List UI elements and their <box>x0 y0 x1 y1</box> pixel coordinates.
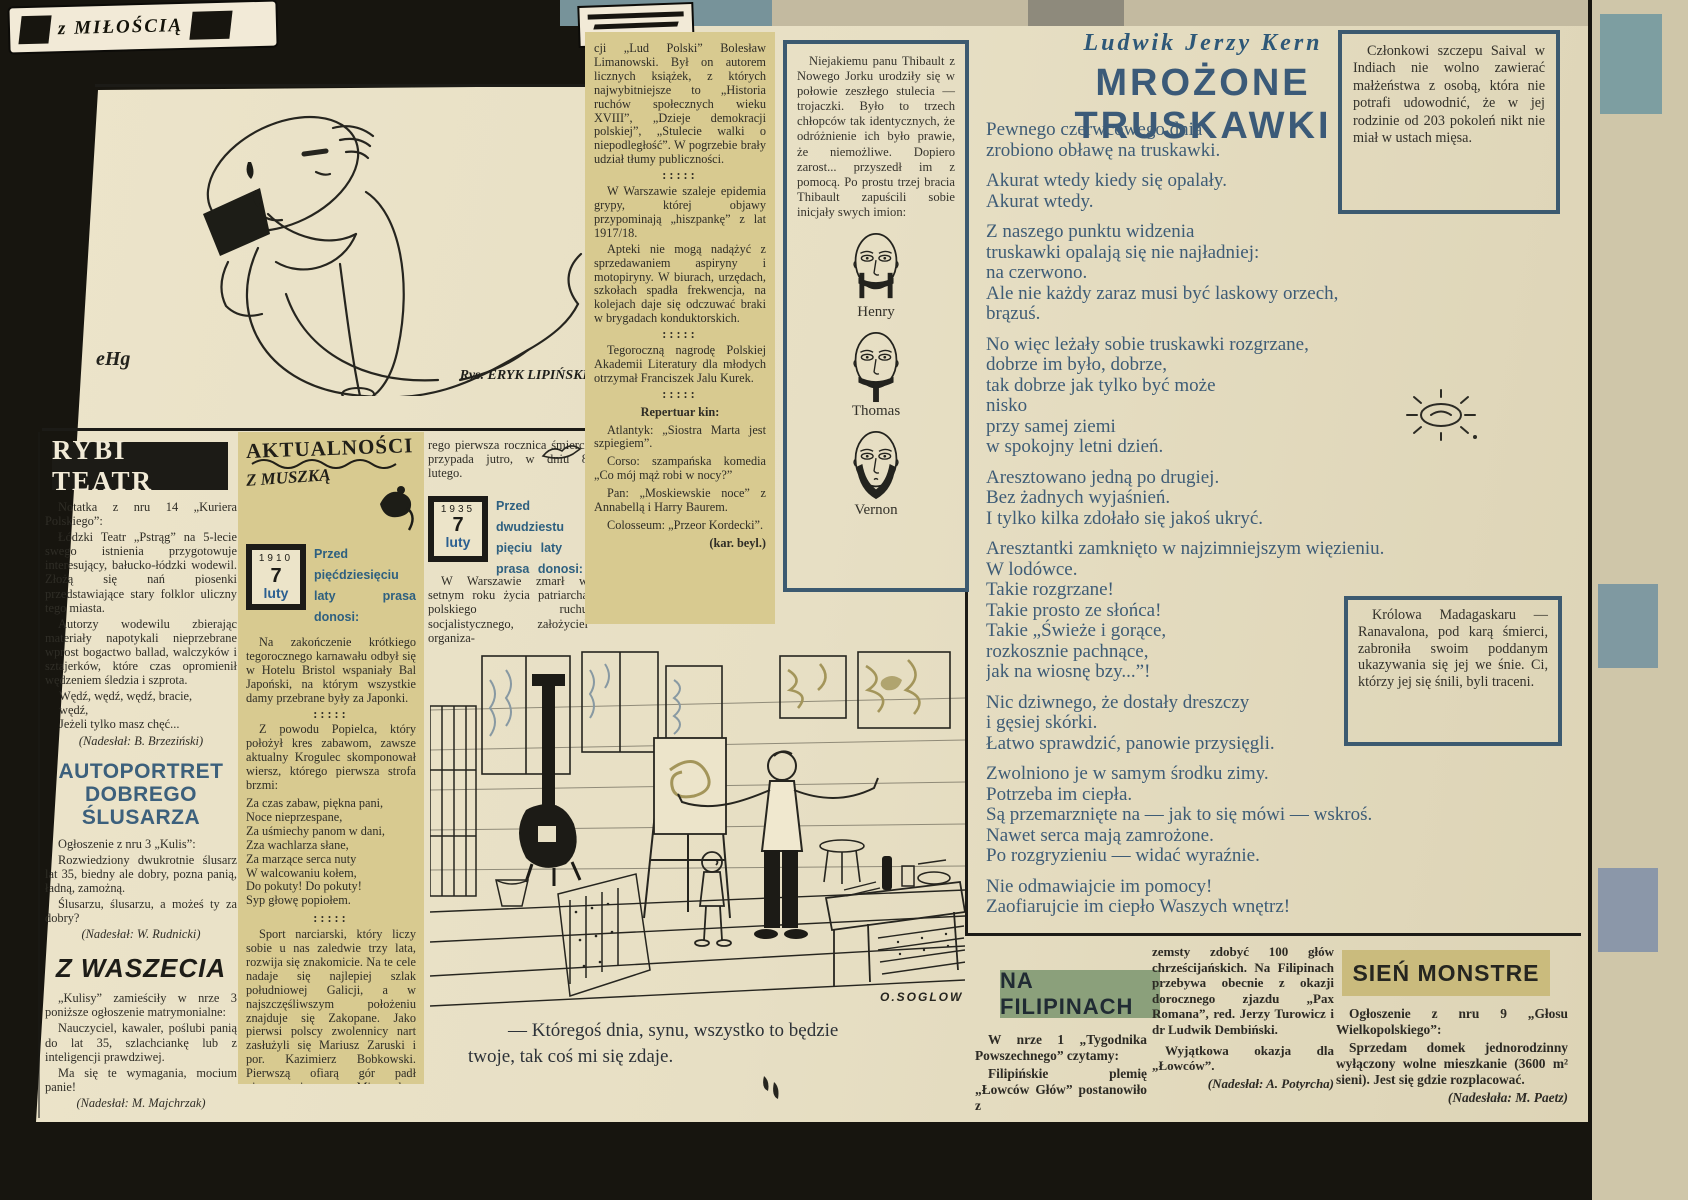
thibault-box: Niejakiemu panu Thibault z Nowego Jorku … <box>783 40 969 592</box>
paragraph: Z powodu Popielca, który położył kres za… <box>246 723 416 793</box>
filipiny-title: NA FILIPINACH <box>1000 968 1160 1020</box>
paragraph: Na zakończenie krótkiego tegorocznego ka… <box>246 636 416 706</box>
paragraph: Ślusarzu, ślusarzu, a możeś ty za dobry? <box>45 897 237 925</box>
calendar-month: luty <box>434 535 482 550</box>
edge-tab-top <box>1600 14 1662 114</box>
studio-cartoon-caption: — Któregoś dnia, synu, wszystko to będzi… <box>468 1018 978 1070</box>
poem-stanza: Nie odmawiajcie im pomocy! Zaofiarujcie … <box>986 877 1461 918</box>
rybi-teatr-title-banner: RYBI TEATR <box>52 442 228 490</box>
paragraph: cji „Lud Polski” Bolesław Limanowski. By… <box>594 42 766 167</box>
aktualnosci-logo-line1: AKTUALNOŚCI <box>246 439 416 459</box>
kino-item: Atlantyk: „Siostra Marta jest szpiegiem”… <box>594 424 766 452</box>
lead-line: Przed dwudziestu pięciu laty prasa donos… <box>496 496 590 580</box>
top-edge-smudge <box>1028 0 1124 26</box>
credit-line: (Nadesłał: A. Potyrcha) <box>1152 1076 1334 1092</box>
paragraph: zemsty zdobyć 100 głów chrześcijańskich.… <box>1152 944 1334 1038</box>
rybi-teatr-title: RYBI TEATR <box>52 435 228 497</box>
aktualnosci-logo-line2: Z MUSZKĄ <box>246 468 331 488</box>
credit-line: (Nadesłał: B. Brzeziński) <box>45 734 237 748</box>
calendar-year: 1910 <box>252 552 300 566</box>
face-vernon: Vernon <box>797 426 955 519</box>
edge-tab-middle <box>1598 584 1658 668</box>
verse: Wędź, wędź, wędź, bracie, wędź, Jeżeli t… <box>45 689 237 731</box>
saival-box: Członkowi szczepu Saival w Indiach nie w… <box>1338 30 1560 214</box>
aktualnosci-panel: AKTUALNOŚCI Z MUSZKĄ 1910 7 luty Przed p… <box>238 432 424 1084</box>
credit-line: (Nadesłała: M. Paetz) <box>1336 1090 1568 1106</box>
sien-title: SIEŃ MONSTRE <box>1352 960 1539 987</box>
henry-face-icon <box>844 228 908 304</box>
column-3-article: W Warszawie zmarł w setnym roku życia pa… <box>428 574 588 647</box>
face-name: Thomas <box>797 403 955 420</box>
sien-banner: SIEŃ MONSTRE <box>1342 950 1550 996</box>
paragraph: Wyjątkowa okazja dla „Łowców”. <box>1152 1043 1334 1074</box>
credit-line: (Nadesłał: W. Rudnicki) <box>45 927 237 941</box>
poem-body: Pewnego czerwcowego dnia zrobiono obławę… <box>986 120 1461 928</box>
cartoon-signature: eHg <box>96 348 166 371</box>
column-left: Notatka z nru 14 „Kuriera Polskiego”: Łó… <box>45 500 237 1120</box>
sien-text: Ogłoszenie z nru 9 „Głosu Wielkopolskieg… <box>1336 1006 1568 1118</box>
face-name: Henry <box>797 304 955 321</box>
kino-item: Colosseum: „Przeor Kordecki”. <box>594 519 766 533</box>
queen-box: Królowa Madagaskaru — Ranavalona, pod ka… <box>1344 596 1562 746</box>
kino-item: Corso: szampańska komedia „Co mój mąż ro… <box>594 455 766 483</box>
separator: ::::: <box>594 169 766 183</box>
paragraph: „Kulisy” zamieściły w nrze 3 poniższe og… <box>45 991 237 1019</box>
filipiny-column-b: zemsty zdobyć 100 głów chrześcijańskich.… <box>1152 944 1334 1114</box>
face-thomas: Thomas <box>797 327 955 420</box>
paragraph: Sprzedam domek jednorodzinny wyłączony w… <box>1336 1040 1568 1088</box>
paragraph: Notatka z nru 14 „Kuriera Polskiego”: <box>45 500 237 528</box>
repertuar-title: Repertuar kin: <box>594 406 766 420</box>
studio-cartoon <box>430 650 965 1018</box>
paragraph: W Warszawie zmarł w setnym roku życia pa… <box>428 574 588 645</box>
cartoon-caption: Rys. ERYK LIPIŃSKI <box>398 368 588 384</box>
left-fold-line <box>38 432 40 1118</box>
calendar-row-1935: 1935 7 luty Przed dwudziestu pięciu laty… <box>428 496 590 580</box>
poem-stanza: Zwolniono je w samym środku zimy. Potrze… <box>986 764 1461 867</box>
separator: ::::: <box>594 388 766 402</box>
prasa-donosi-strip: cji „Lud Polski” Bolesław Limanowski. By… <box>585 32 775 624</box>
masthead-ornament-icon <box>189 11 232 40</box>
thomas-face-icon <box>844 327 908 403</box>
queen-text: Królowa Madagaskaru — Ranavalona, pod ka… <box>1358 607 1548 691</box>
paragraph: Filipińskie plemię „Łowców Głów” postano… <box>975 1066 1147 1114</box>
filipiny-column-a: W nrze 1 „Tygodnika Powszechnego” czytam… <box>975 1032 1147 1116</box>
paragraph: W Warszawie szaleje epidemia grypy, któr… <box>594 185 766 241</box>
masthead-logo: z MIŁOŚCIĄ <box>9 2 276 53</box>
crying-man-cartoon <box>108 96 583 396</box>
calendar-day: 7 <box>252 566 300 586</box>
bird-doodle <box>540 440 585 466</box>
paragraph: Rozwiedziony dwukrotnie ślusarz lat 35, … <box>45 853 237 895</box>
magazine-page-scan: z MIŁOŚCIĄ eHg Rys. ER <box>0 0 1688 1200</box>
ink-doodle <box>758 1072 784 1106</box>
paragraph: W nrze 1 „Tygodnika Powszechnego” czytam… <box>975 1032 1147 1064</box>
paragraph: Sport narciarski, który liczy sobie u na… <box>246 928 416 1084</box>
edge-tab-bottom <box>1598 868 1658 952</box>
autoportret-title: AUTOPORTRET DOBREGO ŚLUSARZA <box>45 760 237 829</box>
poem-stanza: Aresztowano jedną po drugiej. Bez żadnyc… <box>986 468 1461 530</box>
poem-left-rule <box>965 592 968 936</box>
aktualnosci-logo: AKTUALNOŚCI Z MUSZKĄ <box>246 442 416 538</box>
soglow-signature: O.SOGLOW <box>880 990 980 1004</box>
calendar-row: 1910 7 luty Przed pięćdziesięciu laty pr… <box>246 544 416 628</box>
paragraph: Ma się te wymagania, mocium panie! <box>45 1066 237 1094</box>
saival-text: Członkowi szczepu Saival w Indiach nie w… <box>1353 43 1545 147</box>
separator: ::::: <box>594 328 766 342</box>
credit-line: (Nadesłał: M. Majchrzak) <box>45 1096 237 1110</box>
paragraph: Ogłoszenie z nru 3 „Kulis”: <box>45 837 237 851</box>
paragraph: Apteki nie mogą nadążyć z sprzedawaniem … <box>594 243 766 326</box>
paragraph: Autorzy wodewilu zbierając materiały nap… <box>45 617 237 687</box>
poem-stanza: Z naszego punktu widzenia truskawki opal… <box>986 222 1461 325</box>
calendar-day: 7 <box>434 515 482 535</box>
verse: Za czas zabaw, piękna pani, Noce nieprze… <box>246 797 416 908</box>
credit-line: (kar. beyl.) <box>594 537 766 551</box>
poem-bottom-rule <box>965 933 1581 936</box>
calendar-1910: 1910 7 luty <box>246 544 306 610</box>
poem-stanza: No więc leżały sobie truskawki rozgrzane… <box>986 335 1461 458</box>
top-edge-cream-strip <box>772 0 1588 26</box>
filipiny-banner: NA FILIPINACH <box>1000 970 1160 1018</box>
thibault-text: Niejakiemu panu Thibault z Nowego Jorku … <box>797 54 955 220</box>
paragraph: Tegoroczną nagrodę Polskiej Akademii Lit… <box>594 344 766 386</box>
face-henry: Henry <box>797 228 955 321</box>
calendar-month: luty <box>252 586 300 601</box>
masthead-ornament-icon <box>18 15 51 44</box>
separator: ::::: <box>246 708 416 722</box>
kino-item: Pan: „Moskiewskie noce” z Annabellą i Ha… <box>594 487 766 515</box>
mouse-icon <box>374 482 414 534</box>
paragraph: Ogłoszenie z nru 9 „Głosu Wielkopolskieg… <box>1336 1006 1568 1038</box>
lead-line: Przed pięćdziesięciu laty prasa donosi: <box>314 544 416 628</box>
sun-doodle <box>1395 385 1487 449</box>
paragraph: Nauczyciel, kawaler, poślubi panią do la… <box>45 1021 237 1063</box>
vernon-face-icon <box>844 426 908 502</box>
columns-top-rule <box>42 428 590 431</box>
calendar-1935: 1935 7 luty <box>428 496 488 562</box>
z-waszecia-title: Z WASZECIA <box>45 953 237 983</box>
face-name: Vernon <box>797 502 955 519</box>
separator: ::::: <box>246 912 416 926</box>
masthead-text: z MIŁOŚCIĄ <box>58 15 184 40</box>
page-top-rule <box>95 84 585 87</box>
paragraph: Łódzki Teatr „Pstrąg” na 5-lecie swego i… <box>45 530 237 615</box>
